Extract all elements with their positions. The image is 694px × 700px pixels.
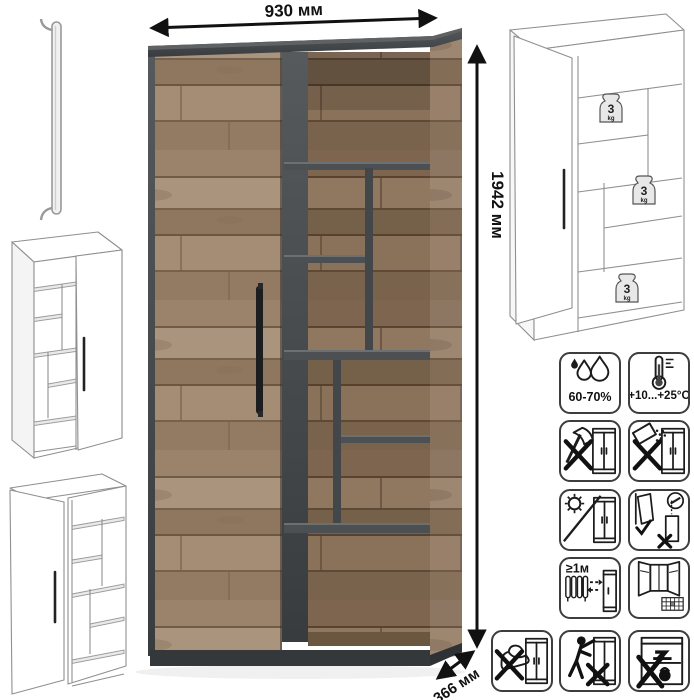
no-spills-icon xyxy=(628,420,690,482)
humidity-icon: 60-70% xyxy=(559,352,621,414)
weight-value: 3 xyxy=(608,102,615,116)
radiator-distance-icon: ≥1м xyxy=(561,559,619,617)
no-sharp-objects-icon xyxy=(559,420,621,482)
no-impact-icon xyxy=(491,630,553,692)
wall-mount-check-icon xyxy=(630,491,688,549)
plinth xyxy=(150,650,430,666)
humidity-caption: 60-70% xyxy=(568,391,611,404)
weight-value: 3 xyxy=(624,282,631,296)
width-dimension: 930 мм xyxy=(152,0,435,28)
height-dimension: 1942 мм xyxy=(477,47,507,646)
product-render xyxy=(135,28,465,679)
open-window-icon xyxy=(630,559,688,617)
shoe-crossed-icon xyxy=(493,632,551,690)
heat-distance-caption: ≥1м xyxy=(566,562,589,576)
shelf-load-weight: 3 kg xyxy=(633,176,655,204)
shelf-load-weight: 3 kg xyxy=(600,94,622,122)
no-direct-sunlight-icon xyxy=(559,489,621,551)
weight-unit: kg xyxy=(623,296,630,302)
door-handle xyxy=(256,286,263,414)
person-climbing-crossed-icon xyxy=(561,632,619,690)
heat-distance-icon: ≥1м xyxy=(559,557,621,619)
orientation-variant-left-drawing xyxy=(12,232,122,458)
weight-value: 3 xyxy=(641,184,648,198)
shelf-load-weight: 3 kg xyxy=(616,274,638,302)
water-drops-icon xyxy=(561,354,619,392)
axe-crossed-icon xyxy=(561,422,619,480)
no-climbing-icon xyxy=(559,630,621,692)
ventilation-icon xyxy=(628,557,690,619)
temperature-icon: +10...+25°C xyxy=(628,352,690,414)
overloaded-shelf-crossed-icon xyxy=(630,632,688,690)
partition-panel xyxy=(282,52,308,642)
grid-mesh-icon xyxy=(662,598,683,611)
temperature-caption: +10...+25°C xyxy=(628,391,690,403)
weight-unit: kg xyxy=(640,198,647,204)
orientation-variant-right-drawing xyxy=(10,474,126,694)
door-handle-drawing xyxy=(41,19,61,220)
anchor-to-wall-icon xyxy=(628,489,690,551)
thermometer-icon xyxy=(630,354,688,392)
spilling-box-crossed-icon xyxy=(630,422,688,480)
sun-slash-icon xyxy=(561,491,619,549)
no-overload-icon xyxy=(628,630,690,692)
width-label: 930 мм xyxy=(264,0,323,21)
internal-structure-drawing: 3 kg 3 kg 3 kg xyxy=(510,14,684,340)
weight-unit: kg xyxy=(607,116,614,122)
height-label: 1942 мм xyxy=(488,171,507,239)
